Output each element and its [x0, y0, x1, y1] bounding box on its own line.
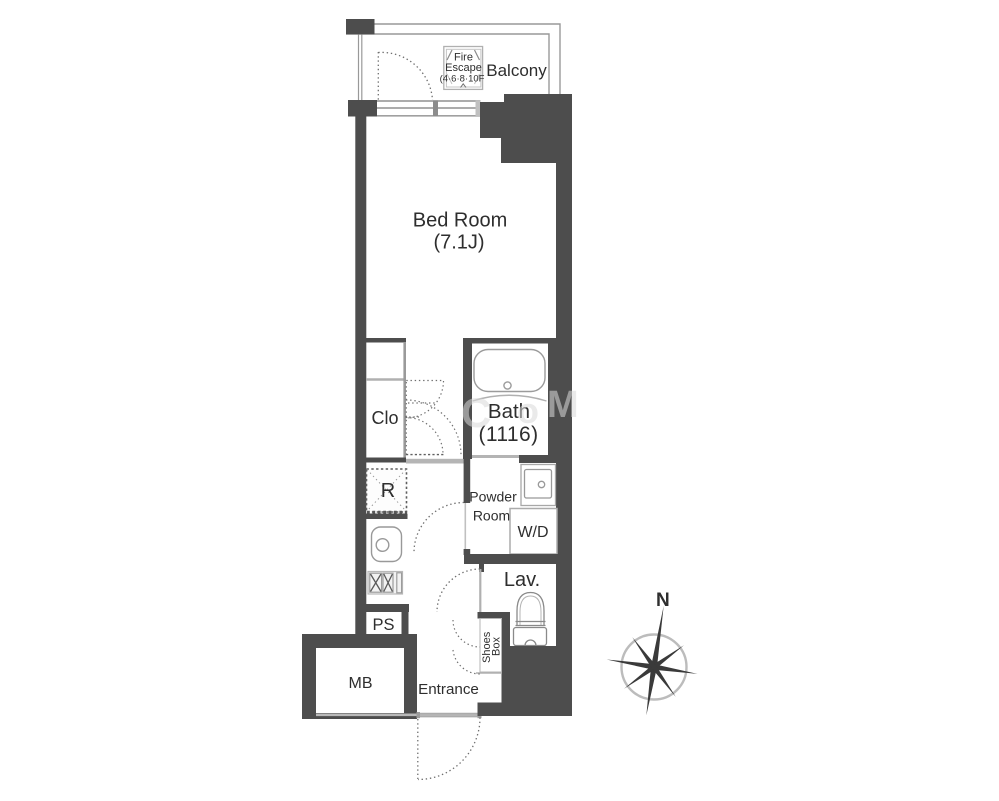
svg-text:R: R	[381, 480, 395, 502]
svg-text:Balcony: Balcony	[486, 61, 547, 80]
svg-text:Bed Room: Bed Room	[413, 210, 508, 232]
svg-text:o: o	[517, 390, 539, 431]
svg-text:M: M	[547, 384, 579, 426]
svg-text:PS: PS	[372, 616, 394, 634]
svg-text:(7.1J): (7.1J)	[433, 232, 484, 254]
svg-text:Clo: Clo	[371, 408, 398, 428]
svg-text:MB: MB	[349, 675, 373, 692]
svg-text:W/D: W/D	[517, 524, 548, 541]
svg-text:Entrance: Entrance	[418, 681, 479, 698]
svg-text:Powder: Powder	[469, 489, 517, 505]
svg-text:Room: Room	[473, 508, 510, 524]
svg-text:(4·6·8·10F: (4·6·8·10F	[440, 74, 485, 85]
svg-text:Lav.: Lav.	[504, 569, 540, 591]
svg-text:C: C	[461, 389, 491, 436]
svg-text:Escape: Escape	[445, 62, 482, 74]
svg-text:Box: Box	[491, 637, 503, 656]
svg-text:N: N	[656, 590, 670, 611]
